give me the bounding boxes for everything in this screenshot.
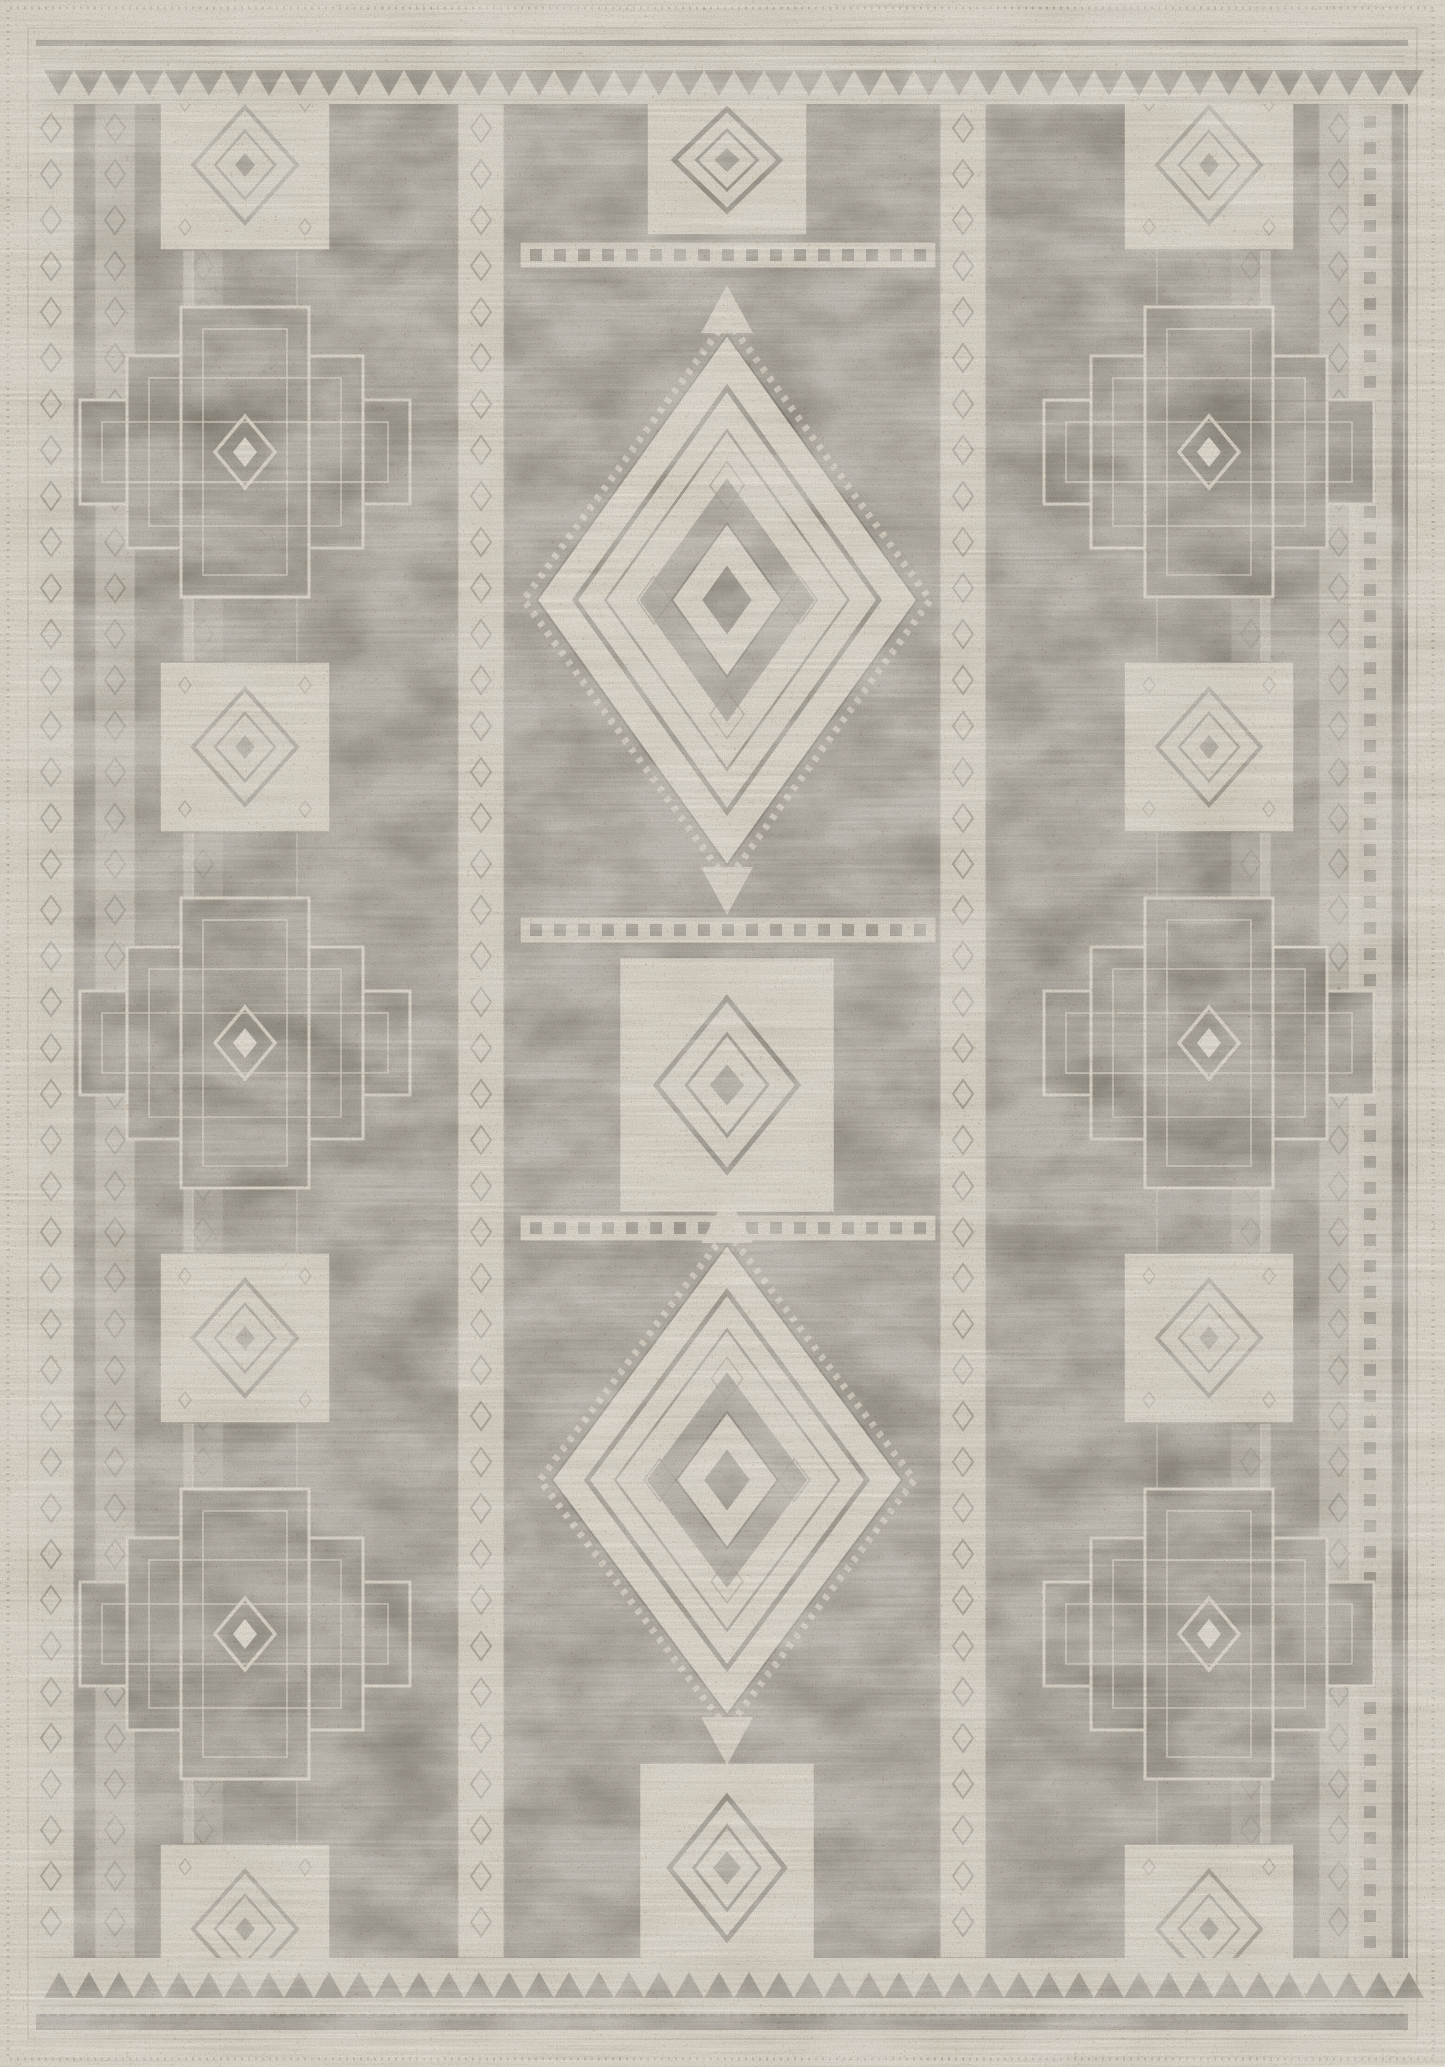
rug-image	[0, 0, 1445, 2067]
texture-grain	[0, 0, 1445, 2067]
rug-photo	[0, 0, 1445, 2067]
